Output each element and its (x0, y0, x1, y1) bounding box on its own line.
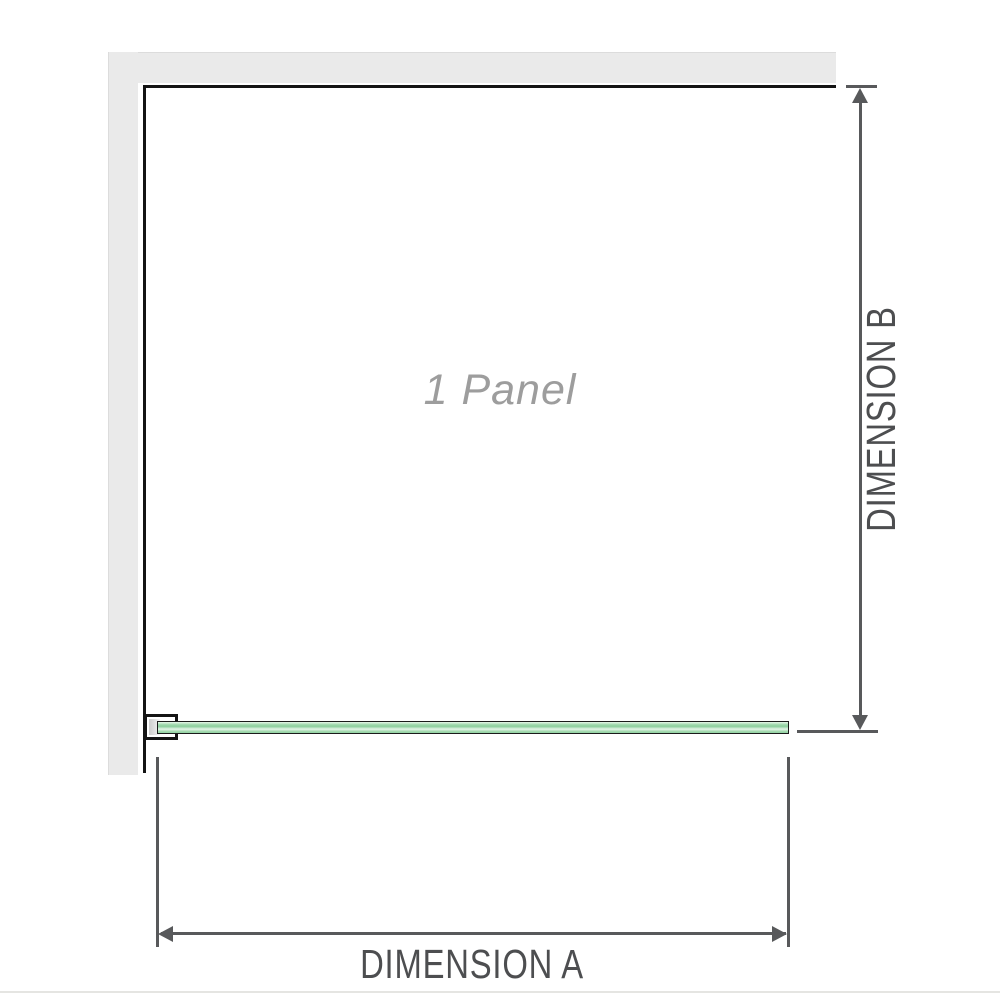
dimension-b-tick-bottom (797, 730, 878, 733)
bottom-divider-line (0, 991, 1000, 993)
wall-inner-edge-left (143, 85, 146, 773)
dimension-b-arrowhead-down-icon (852, 715, 868, 730)
dimension-a-extension-right (787, 757, 790, 947)
dimension-b-arrowhead-up-icon (852, 88, 868, 103)
wall-left (108, 52, 138, 775)
dimension-a-label: DIMENSION A (232, 941, 712, 988)
dimension-a-arrow-line (161, 932, 786, 935)
wall-inner-edge-top (143, 85, 836, 88)
diagram-canvas: 1 Panel DIMENSION A DIMENSION B (0, 0, 1000, 1000)
dimension-a-arrowhead-left-icon (158, 926, 173, 942)
glass-panel (157, 721, 789, 734)
dimension-a-extension-left (156, 757, 159, 947)
dimension-a-arrowhead-right-icon (772, 926, 787, 942)
wall-top (108, 52, 836, 83)
dimension-b-label: DIMENSION B (859, 299, 903, 539)
panel-count-label: 1 Panel (300, 364, 700, 416)
